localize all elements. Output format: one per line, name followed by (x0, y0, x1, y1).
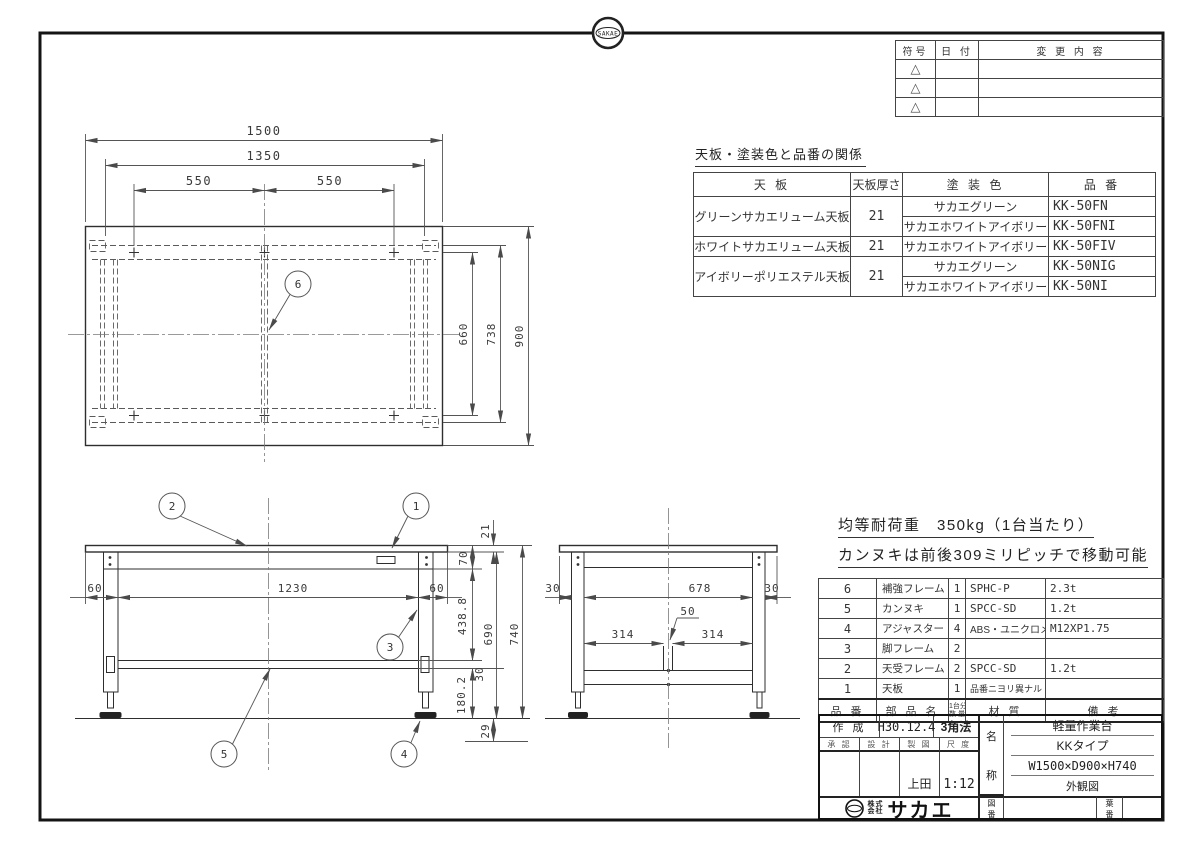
revision-row: △ (896, 98, 1164, 117)
revision-triangle-icon: △ (896, 79, 936, 98)
product-number: KK-50FNI (1049, 217, 1156, 237)
created-label: 作 成 (820, 716, 880, 738)
paint-header-number: 品 番 (1049, 173, 1156, 197)
draft-value: 上田 (900, 752, 940, 796)
front-view: 60 1230 60 21 70 438.8 30 180.2 690 740 … (70, 493, 532, 772)
parts-row: 3 脚フレーム 2 (819, 639, 1164, 659)
dim-438-8: 438.8 (456, 597, 469, 635)
balloon-4: 4 (391, 721, 420, 767)
created-date: H30.12.4 (880, 716, 934, 738)
parts-row: 6 補強フレーム 1 SPHC-P 2.3t (819, 579, 1164, 599)
svg-text:3: 3 (387, 641, 394, 654)
dim-30: 30 (473, 666, 486, 681)
stamp-text: SAKAE (598, 31, 619, 38)
dim-690: 690 (482, 623, 495, 646)
svg-text:5: 5 (221, 748, 228, 761)
dim-550-left: 550 (186, 174, 212, 188)
paint-row: ホワイトサカエリューム天板 21 サカエホワイトアイボリー KK-50FIV (694, 237, 1156, 257)
projection-method: 3角法 (934, 716, 978, 738)
paint-board: ホワイトサカエリューム天板 (694, 237, 851, 257)
revision-triangle-icon: △ (896, 98, 936, 117)
plan-view: 1500 1350 550 550 660 738 900 6 (68, 124, 534, 462)
revision-row: △ (896, 60, 1164, 79)
paint-header-color: 塗 装 色 (903, 173, 1049, 197)
revision-table: 符号 日 付 変 更 内 容 △ △ △ (895, 40, 1164, 117)
product-number: KK-50FIV (1049, 237, 1156, 257)
revision-header-symbol: 符号 (896, 41, 936, 60)
scale-value: 1:12 (940, 752, 978, 796)
dim-900: 900 (513, 325, 526, 348)
drawing-sheet: .o{stroke:#2e2e2e;stroke-width:1.4;fill:… (0, 0, 1200, 846)
sakae-logo-icon (845, 799, 864, 818)
design-value (860, 752, 900, 796)
paint-header-thickness: 天板厚さ (851, 173, 903, 197)
scale-label: 尺 度 (940, 738, 978, 752)
company-name: サカエ (888, 794, 954, 823)
paint-row: グリーンサカエリューム天板 21 サカエグリーン KK-50FN (694, 197, 1156, 217)
company-prefix: 株式 会社 (868, 801, 884, 816)
balloon-1: 1 (392, 493, 429, 548)
sakae-stamp-icon: SAKAE (593, 18, 623, 48)
approved-value (820, 752, 860, 796)
parts-row: 2 天受フレーム 2 SPCC-SD 1.2t (819, 659, 1164, 679)
revision-header-change: 変 更 内 容 (979, 41, 1164, 60)
dim-314-right: 314 (702, 628, 725, 641)
dim-60-left: 60 (87, 582, 102, 595)
side-view: 30 678 30 50 314 314 (545, 508, 800, 748)
paint-table: 天 板 天板厚さ 塗 装 色 品 番 グリーンサカエリューム天板 21 サカエグ… (693, 172, 1156, 297)
parts-row: 5 カンヌキ 1 SPCC-SD 1.2t (819, 599, 1164, 619)
dim-30-right: 30 (764, 582, 779, 595)
dim-70: 70 (457, 550, 470, 565)
paint-color: サカエホワイトアイボリー (903, 217, 1049, 237)
note-load-capacity: 均等耐荷重 350kg（1台当たり） (838, 514, 1094, 538)
dim-660: 660 (457, 323, 470, 346)
view-type: 外観図 (1011, 776, 1154, 796)
draft-label: 製 図 (900, 738, 940, 752)
balloon-6: 6 (269, 271, 311, 330)
drawing-name: 軽量作業台 KKタイプ W1500×D900×H740 外観図 (1004, 716, 1161, 796)
dim-740: 740 (508, 623, 521, 646)
dim-1230: 1230 (278, 582, 309, 595)
parts-row: 1 天板 1 品番ニヨリ異ナル（上記参照） (819, 679, 1164, 700)
dim-678: 678 (689, 582, 712, 595)
parts-table: 6 補強フレーム 1 SPHC-P 2.3t 5 カンヌキ 1 SPCC-SD … (818, 578, 1164, 723)
paint-board: アイボリーポリエステル天板 (694, 257, 851, 297)
load-notes: 均等耐荷重 350kg（1台当たり） カンヌキは前後309ミリピッチで移動可能 (838, 514, 1148, 574)
product-number: KK-50NI (1049, 277, 1156, 297)
hidden-leg-lines (101, 260, 428, 409)
company-logo: 株式 会社 サカエ (820, 796, 978, 818)
bolt-marks (129, 248, 399, 421)
product-size: W1500×D900×H740 (1011, 756, 1154, 776)
dim-30-left: 30 (545, 582, 560, 595)
revision-header-row: 符号 日 付 変 更 内 容 (896, 41, 1164, 60)
product-type: KKタイプ (1011, 736, 1154, 756)
paint-color: サカエホワイトアイボリー (903, 237, 1049, 257)
drawing-no-value (1004, 796, 1097, 818)
dim-180-2: 180.2 (455, 676, 468, 714)
svg-text:4: 4 (401, 748, 408, 761)
note-kannuki-pitch: カンヌキは前後309ミリピッチで移動可能 (838, 544, 1148, 568)
paint-color: サカエグリーン (903, 257, 1049, 277)
paint-header-board: 天 板 (694, 173, 851, 197)
drawing-no-label: 図 番 (980, 796, 1004, 818)
revision-triangle-icon: △ (896, 60, 936, 79)
approved-label: 承 認 (820, 738, 860, 752)
paint-color: サカエグリーン (903, 197, 1049, 217)
dim-50: 50 (680, 605, 695, 618)
paint-row: アイボリーポリエステル天板 21 サカエグリーン KK-50NIG (694, 257, 1156, 277)
svg-text:2: 2 (169, 500, 176, 513)
title-block: 作 成 H30.12.4 3角法 承 認 設 計 製 図 尺 度 上田 1:12… (818, 714, 1163, 820)
design-label: 設 計 (860, 738, 900, 752)
svg-text:1: 1 (413, 500, 420, 513)
paint-thickness: 21 (851, 257, 903, 297)
paint-thickness: 21 (851, 197, 903, 237)
product-name: 軽量作業台 (1011, 716, 1154, 736)
revision-row: △ (896, 79, 1164, 98)
product-number: KK-50FN (1049, 197, 1156, 217)
product-number: KK-50NIG (1049, 257, 1156, 277)
paint-board: グリーンサカエリューム天板 (694, 197, 851, 237)
dim-550-right: 550 (317, 174, 343, 188)
svg-text:6: 6 (295, 278, 302, 291)
dim-314-left: 314 (612, 628, 635, 641)
dim-29: 29 (479, 723, 492, 738)
paint-thickness: 21 (851, 237, 903, 257)
sheet-no-value (1123, 796, 1161, 818)
paint-header-row: 天 板 天板厚さ 塗 装 色 品 番 (694, 173, 1156, 197)
dim-1350: 1350 (247, 149, 282, 163)
balloon-3: 3 (377, 610, 417, 660)
dim-60-right: 60 (429, 582, 444, 595)
revision-header-date: 日 付 (936, 41, 979, 60)
paint-table-title: 天板・塗装色と品番の関係 (695, 144, 866, 167)
dim-1500: 1500 (247, 124, 282, 138)
adjuster-feet (100, 692, 437, 718)
balloon-2: 2 (159, 493, 247, 546)
paint-color: サカエホワイトアイボリー (903, 277, 1049, 297)
name-label: 名 称 (980, 716, 1004, 796)
dim-738: 738 (485, 323, 498, 346)
parts-row: 4 アジャスター 4 ABS・ユニクロメッキ M12XP1.75 (819, 619, 1164, 639)
dim-21: 21 (479, 523, 492, 538)
sheet-no-label: 葉 番 (1097, 796, 1123, 818)
